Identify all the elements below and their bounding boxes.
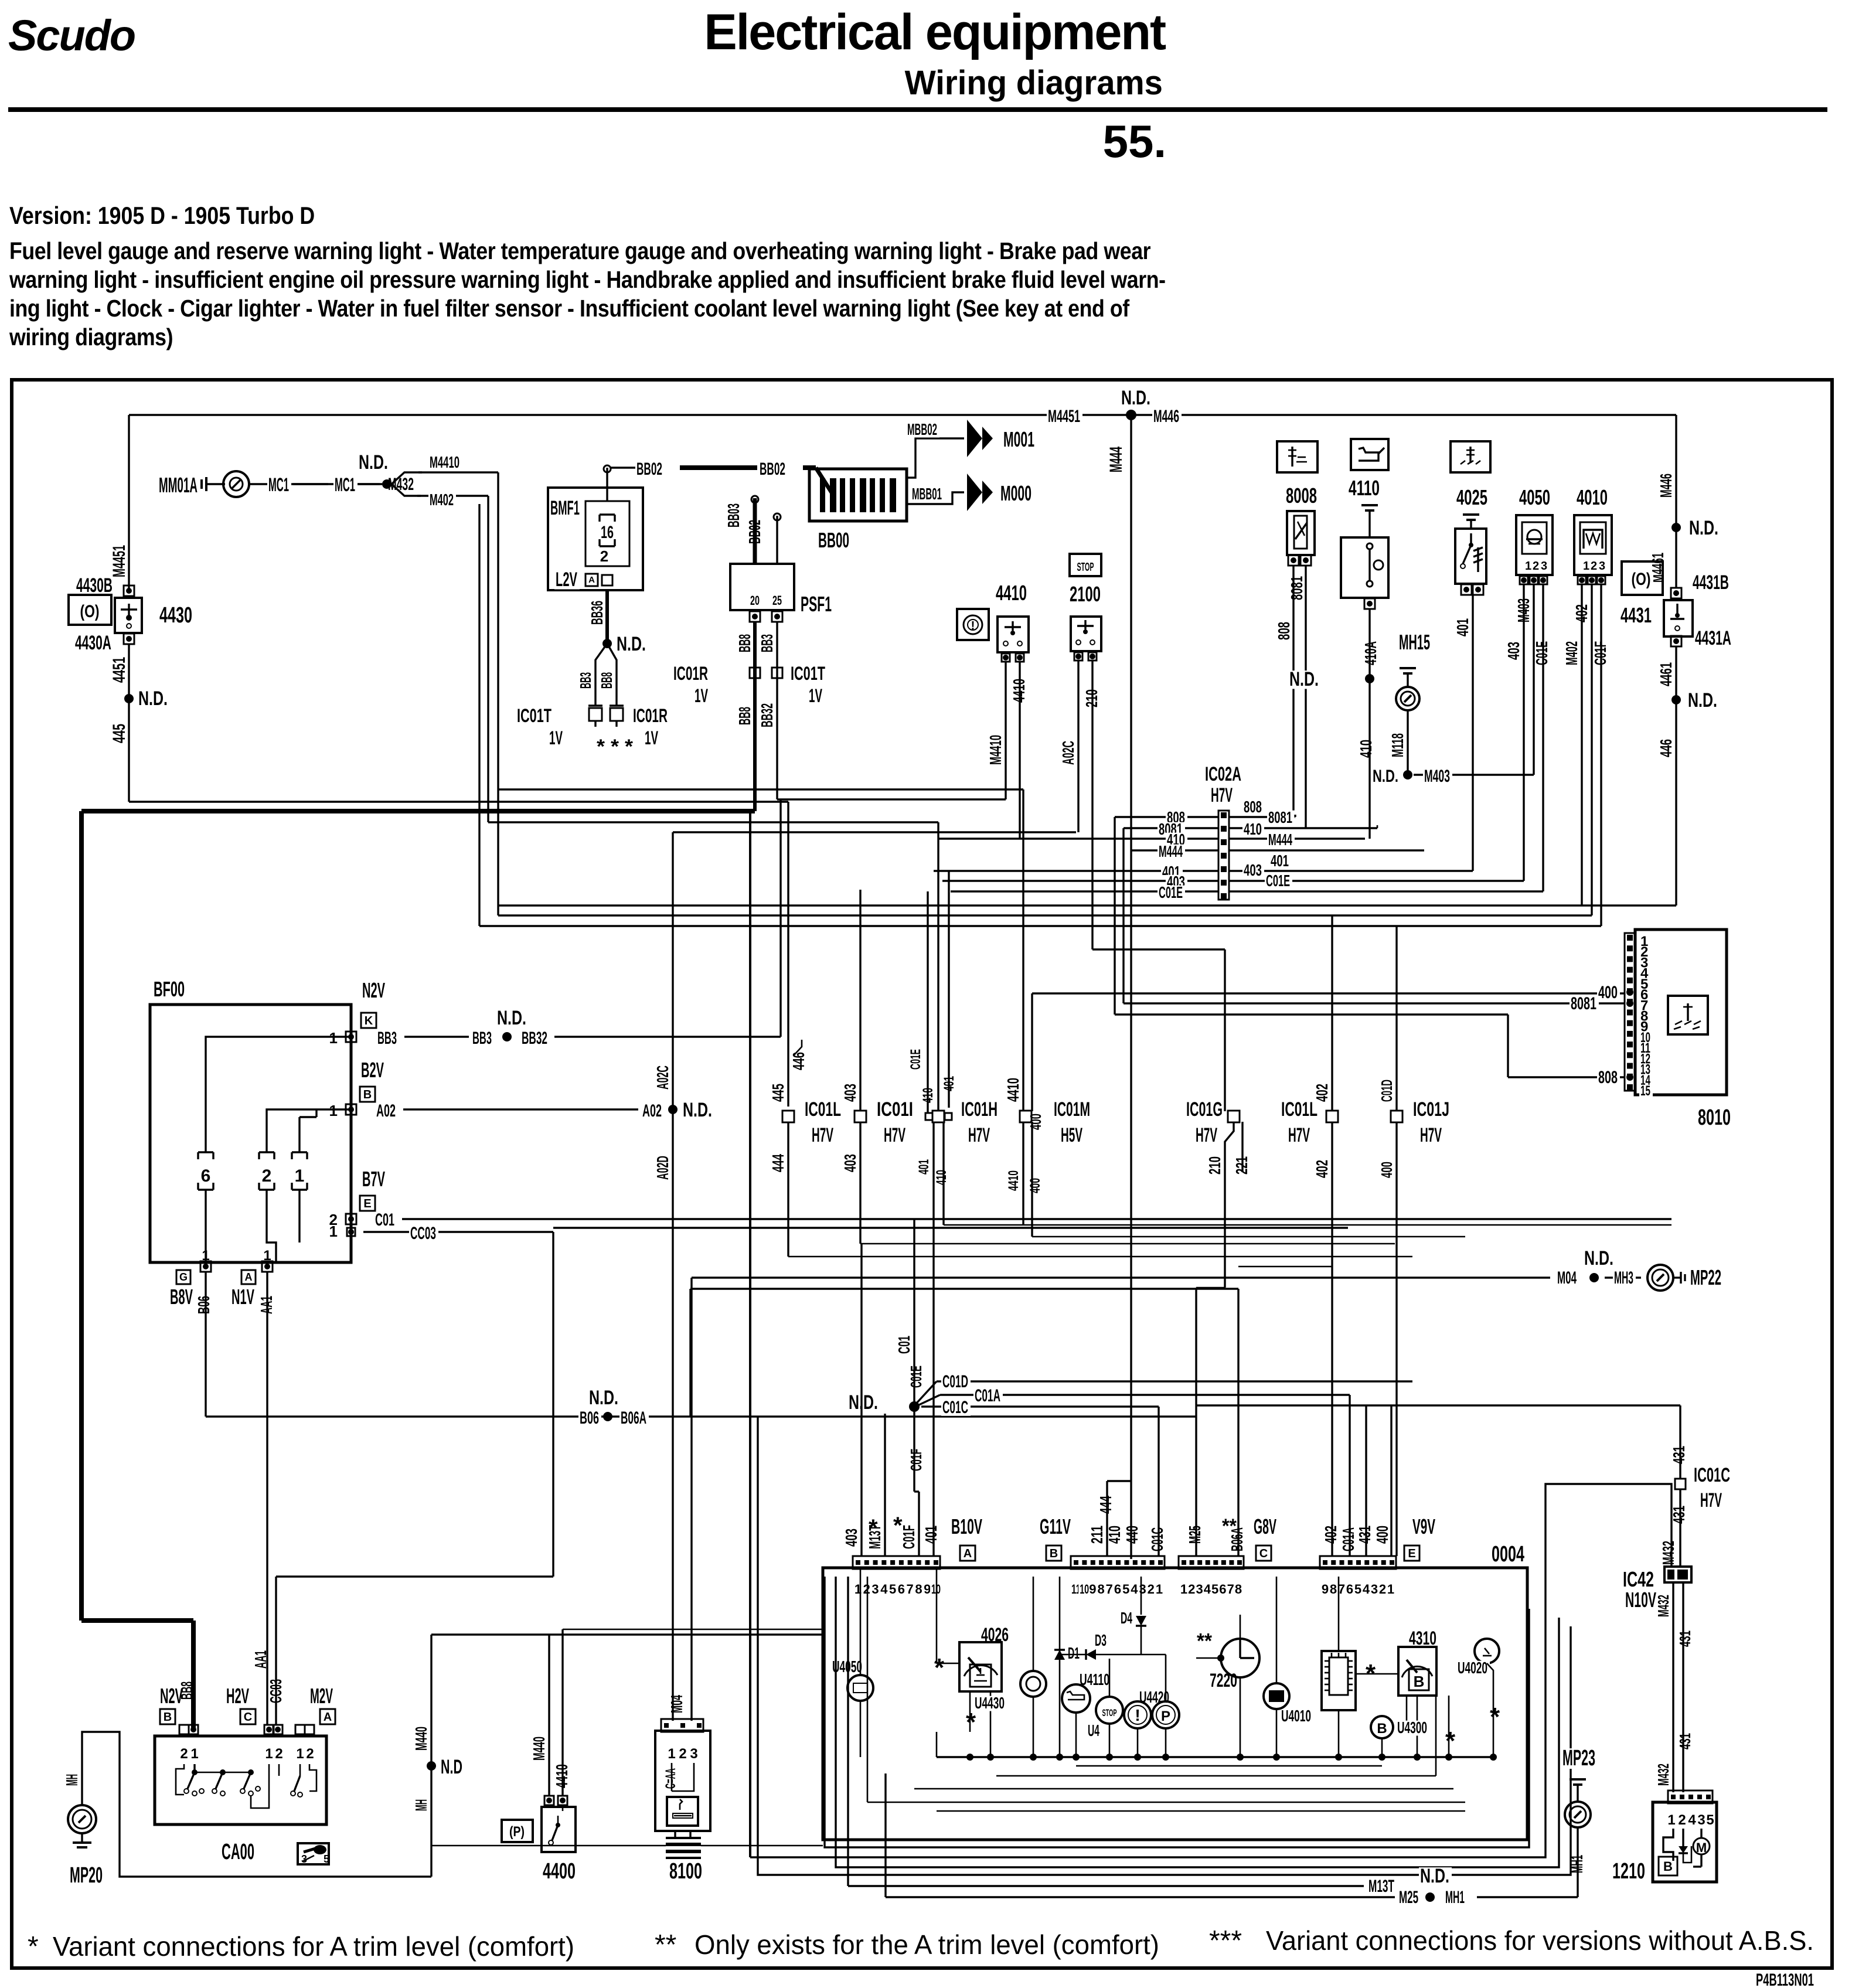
svg-text:401: 401 — [922, 1526, 940, 1544]
svg-text:C01E: C01E — [1266, 872, 1290, 890]
svg-text:4050: 4050 — [1519, 485, 1550, 509]
svg-text:*: * — [28, 1931, 39, 1962]
svg-text:IC01R: IC01R — [633, 705, 668, 726]
svg-text:4430: 4430 — [159, 603, 192, 628]
svg-text:IC01T: IC01T — [791, 663, 825, 684]
svg-text:MP20: MP20 — [70, 1863, 103, 1888]
svg-text:5: 5 — [1354, 1582, 1361, 1596]
svg-text:8081: 8081 — [1288, 576, 1306, 600]
svg-text:400: 400 — [1378, 1162, 1395, 1178]
svg-text:4: 4 — [1131, 1582, 1138, 1596]
svg-text:1: 1 — [1156, 1582, 1163, 1596]
svg-text:N.D.: N.D. — [497, 1007, 526, 1029]
svg-text:U4020: U4020 — [1458, 1659, 1487, 1677]
svg-text:403: 403 — [1244, 861, 1262, 879]
svg-text:1: 1 — [329, 1102, 338, 1119]
svg-text:3: 3 — [1371, 1582, 1378, 1596]
svg-text:BB8: BB8 — [736, 707, 754, 725]
svg-text:(O): (O) — [1632, 570, 1651, 589]
svg-text:D3: D3 — [1095, 1631, 1107, 1649]
svg-text:4010: 4010 — [1577, 485, 1608, 509]
svg-text:PSF1: PSF1 — [801, 592, 832, 616]
svg-text:MH: MH — [63, 1774, 81, 1786]
svg-text:BB3: BB3 — [758, 634, 776, 652]
svg-text:M402: M402 — [1562, 641, 1581, 665]
svg-text:U4: U4 — [1088, 1721, 1099, 1740]
svg-text:8008: 8008 — [1286, 484, 1317, 508]
svg-text:N.D.: N.D. — [1420, 1865, 1449, 1887]
svg-text:E: E — [1408, 1547, 1415, 1560]
svg-text:4025: 4025 — [1456, 485, 1487, 509]
svg-text:IC01J: IC01J — [1413, 1098, 1449, 1121]
svg-text:1: 1 — [668, 1746, 675, 1762]
svg-text:H5V: H5V — [1061, 1124, 1082, 1146]
svg-text:N.D.: N.D. — [617, 633, 646, 655]
svg-text:C01A: C01A — [975, 1386, 1000, 1405]
svg-text:BB32: BB32 — [522, 1029, 547, 1048]
svg-text:BB02: BB02 — [636, 459, 662, 479]
svg-text:C: C — [1259, 1547, 1268, 1560]
svg-text:1: 1 — [296, 1746, 304, 1762]
svg-text:445: 445 — [110, 724, 129, 743]
svg-text:1V: 1V — [549, 727, 563, 748]
svg-text:A: A — [245, 1271, 253, 1283]
svg-text:M04: M04 — [1557, 1268, 1577, 1288]
svg-text:401: 401 — [941, 1076, 957, 1091]
svg-text:C01D: C01D — [942, 1372, 968, 1391]
svg-text:4: 4 — [1204, 1582, 1211, 1596]
svg-text:P: P — [1161, 1708, 1170, 1724]
svg-text:V9V: V9V — [1412, 1514, 1435, 1538]
svg-text:403: 403 — [842, 1529, 860, 1547]
svg-text:B: B — [363, 1088, 372, 1101]
svg-text:Variant connections for versio: Variant connections for versions without… — [1266, 1925, 1814, 1956]
svg-text:7: 7 — [1227, 1582, 1234, 1596]
svg-text:MH1: MH1 — [1568, 1855, 1586, 1873]
svg-text:*: * — [934, 1653, 945, 1682]
svg-text:431: 431 — [1670, 1446, 1688, 1464]
svg-text:1: 1 — [265, 1746, 273, 1762]
svg-text:MM01A: MM01A — [159, 473, 198, 497]
svg-text:CA00: CA00 — [222, 1840, 254, 1864]
svg-text:B06A: B06A — [621, 1408, 646, 1428]
svg-text:N.D.: N.D. — [683, 1099, 712, 1121]
svg-text:A02: A02 — [376, 1101, 396, 1121]
svg-text:M2V: M2V — [310, 1684, 333, 1708]
svg-text:4410: 4410 — [553, 1764, 571, 1788]
svg-text:2: 2 — [1678, 1812, 1686, 1828]
svg-text:C01: C01 — [375, 1210, 394, 1230]
svg-text:IC01G: IC01G — [1186, 1098, 1223, 1121]
svg-text:M432: M432 — [388, 475, 414, 494]
svg-text:M402: M402 — [430, 491, 454, 509]
svg-text:M: M — [1696, 1840, 1707, 1855]
svg-text:4431B: 4431B — [1693, 571, 1729, 594]
svg-text:4430B: 4430B — [76, 574, 113, 597]
svg-text:403: 403 — [841, 1154, 859, 1172]
svg-text:N.D.: N.D. — [1688, 689, 1717, 712]
svg-text:8010: 8010 — [1698, 1105, 1731, 1130]
svg-text:M446: M446 — [1153, 407, 1179, 426]
svg-text:U4010: U4010 — [1281, 1707, 1311, 1725]
svg-text:P4B113N01: P4B113N01 — [1756, 1970, 1814, 1988]
svg-text:16: 16 — [601, 523, 614, 542]
svg-text:400: 400 — [1027, 1178, 1043, 1193]
svg-text:402: 402 — [1313, 1160, 1331, 1178]
svg-text:A: A — [964, 1547, 972, 1560]
svg-text:2: 2 — [180, 1746, 188, 1762]
svg-text:MH: MH — [412, 1799, 430, 1811]
svg-text:MC1: MC1 — [268, 474, 289, 495]
svg-text:1210: 1210 — [1612, 1859, 1645, 1884]
svg-text:M444: M444 — [1268, 830, 1292, 849]
svg-text:C01F: C01F — [900, 1525, 918, 1549]
svg-text:*: * — [966, 1708, 976, 1737]
svg-text:H2V: H2V — [226, 1684, 249, 1708]
svg-text:2: 2 — [1148, 1582, 1155, 1596]
svg-text:M04: M04 — [668, 1695, 686, 1713]
svg-text:MH3: MH3 — [1614, 1268, 1633, 1288]
svg-text:BB3: BB3 — [472, 1029, 492, 1048]
svg-text:400: 400 — [1373, 1526, 1391, 1544]
svg-text:BB36: BB36 — [588, 601, 606, 625]
svg-text:401: 401 — [1453, 618, 1472, 636]
svg-text:A: A — [324, 1711, 332, 1724]
svg-text:444: 444 — [769, 1154, 787, 1172]
svg-text:B06: B06 — [580, 1408, 599, 1428]
svg-text:BB3: BB3 — [577, 672, 594, 689]
svg-text:4110: 4110 — [1349, 476, 1380, 500]
svg-text:25: 25 — [772, 593, 782, 608]
svg-text:4410: 4410 — [1004, 1078, 1022, 1102]
svg-text:(P): (P) — [509, 1824, 525, 1840]
svg-text:4310: 4310 — [1409, 1628, 1436, 1649]
svg-text:(O): (O) — [80, 602, 100, 621]
svg-text:MP23: MP23 — [1562, 1746, 1595, 1771]
svg-text:N1V: N1V — [231, 1285, 254, 1309]
svg-text:C: C — [244, 1711, 252, 1724]
svg-text:M432: M432 — [1659, 1541, 1677, 1565]
svg-text:M4410: M4410 — [986, 735, 1005, 765]
svg-text:808: 808 — [1244, 798, 1262, 816]
svg-text:STOP: STOP — [1077, 561, 1094, 574]
svg-text:1: 1 — [202, 1248, 209, 1264]
svg-text:M432: M432 — [1654, 1764, 1672, 1786]
svg-text:M4451: M4451 — [1048, 407, 1080, 426]
svg-text:3: 3 — [301, 1853, 307, 1865]
svg-text:210: 210 — [1206, 1156, 1224, 1175]
svg-text:402: 402 — [1572, 604, 1591, 622]
svg-text:B8V: B8V — [170, 1285, 193, 1309]
svg-text:MP22: MP22 — [1690, 1265, 1721, 1289]
svg-text:N.D.: N.D. — [138, 687, 168, 710]
svg-text:BB32: BB32 — [758, 703, 776, 727]
svg-text:C01E: C01E — [1159, 883, 1183, 901]
svg-text:C01E: C01E — [1533, 641, 1551, 665]
svg-text:6: 6 — [201, 1166, 211, 1186]
svg-text:410: 410 — [920, 1088, 936, 1103]
svg-text:9: 9 — [1322, 1582, 1329, 1596]
svg-text:N.D: N.D — [441, 1756, 462, 1778]
svg-text:0004: 0004 — [1492, 1542, 1524, 1567]
svg-text:C01D: C01D — [1378, 1080, 1395, 1102]
svg-text:7: 7 — [907, 1582, 914, 1596]
svg-text:1V: 1V — [809, 685, 822, 706]
svg-text:**: ** — [1197, 1629, 1212, 1653]
svg-text:!: ! — [1135, 1706, 1140, 1724]
svg-text:403: 403 — [1504, 642, 1523, 660]
svg-text:M4451: M4451 — [110, 545, 129, 577]
svg-text:410: 410 — [1357, 740, 1375, 758]
svg-text:401: 401 — [1271, 852, 1289, 870]
svg-text:M001: M001 — [1003, 427, 1034, 451]
svg-text:M403: M403 — [1424, 767, 1450, 786]
svg-text:10: 10 — [1080, 1582, 1089, 1596]
svg-text:808: 808 — [1598, 1068, 1618, 1087]
svg-text:8: 8 — [915, 1582, 922, 1596]
svg-text:7: 7 — [1106, 1582, 1113, 1596]
svg-text:**: ** — [655, 1929, 676, 1960]
svg-text:2: 2 — [600, 547, 608, 565]
svg-text:B: B — [1377, 1721, 1387, 1737]
svg-text:A02C: A02C — [653, 1066, 672, 1090]
svg-text:H7V: H7V — [812, 1124, 833, 1146]
svg-text:2: 2 — [1591, 560, 1597, 573]
svg-text:H7V: H7V — [1196, 1124, 1217, 1146]
svg-text:BB03: BB03 — [724, 503, 743, 527]
svg-text:211: 211 — [1088, 1526, 1106, 1544]
svg-text:446: 446 — [1657, 739, 1675, 757]
svg-text:IC01L: IC01L — [1281, 1098, 1317, 1121]
svg-text:4410: 4410 — [1006, 1170, 1022, 1191]
svg-text:B: B — [164, 1711, 172, 1724]
svg-text:1: 1 — [329, 1223, 338, 1240]
svg-text:U4300: U4300 — [1397, 1718, 1427, 1737]
svg-text:N.D.: N.D. — [589, 1387, 618, 1409]
svg-text:2: 2 — [306, 1746, 314, 1762]
svg-text:M25: M25 — [1186, 1526, 1204, 1544]
svg-text:400: 400 — [1598, 983, 1618, 1002]
svg-text:IC01L: IC01L — [805, 1098, 841, 1121]
svg-text:1: 1 — [1180, 1582, 1187, 1596]
svg-text:9: 9 — [924, 1582, 931, 1596]
svg-text:4: 4 — [1688, 1812, 1696, 1828]
svg-text:1: 1 — [263, 1248, 271, 1264]
svg-text:6: 6 — [898, 1582, 905, 1596]
svg-text:N.D.: N.D. — [359, 451, 388, 474]
svg-text:8081: 8081 — [1571, 994, 1596, 1013]
svg-text:5: 5 — [1706, 1812, 1714, 1828]
svg-text:403: 403 — [841, 1084, 859, 1102]
svg-text:C=AA: C=AA — [663, 1768, 679, 1789]
svg-text:E: E — [363, 1197, 371, 1210]
svg-text:H7V: H7V — [1211, 784, 1233, 806]
svg-text:M118: M118 — [1388, 733, 1407, 757]
svg-text:BB3: BB3 — [377, 1029, 397, 1048]
svg-text:8: 8 — [1330, 1582, 1337, 1596]
svg-text:431: 431 — [1356, 1526, 1374, 1544]
svg-text:M4410: M4410 — [430, 453, 459, 471]
svg-text:M446: M446 — [1657, 474, 1675, 498]
svg-text:M000: M000 — [1000, 481, 1031, 505]
svg-text:1: 1 — [295, 1166, 305, 1186]
svg-text:*: * — [1445, 1727, 1456, 1755]
svg-text:A02: A02 — [642, 1101, 662, 1121]
svg-text:!: ! — [971, 619, 975, 632]
svg-text:M444: M444 — [1107, 447, 1126, 472]
svg-text:AA1: AA1 — [251, 1650, 270, 1669]
svg-text:8: 8 — [1235, 1582, 1242, 1596]
svg-text:N10V: N10V — [1625, 1588, 1656, 1612]
svg-text:MBB02: MBB02 — [907, 420, 937, 438]
svg-text:B7V: B7V — [362, 1167, 385, 1191]
svg-text:K: K — [365, 1015, 373, 1027]
svg-text:431: 431 — [1676, 1733, 1694, 1749]
svg-text:M13T: M13T — [866, 1525, 884, 1549]
svg-text:IC02A: IC02A — [1205, 763, 1241, 785]
svg-text:B: B — [1050, 1547, 1058, 1560]
svg-text:6: 6 — [1346, 1582, 1353, 1596]
svg-text:M403: M403 — [1514, 598, 1533, 622]
svg-text:2: 2 — [275, 1746, 282, 1762]
svg-text:3: 3 — [1541, 560, 1547, 573]
svg-text:STOP: STOP — [1102, 1707, 1117, 1718]
svg-text:1: 1 — [1387, 1582, 1394, 1596]
svg-text:6: 6 — [1114, 1582, 1121, 1596]
svg-text:446: 446 — [789, 1052, 808, 1070]
svg-text:808: 808 — [1275, 622, 1293, 640]
svg-text:5: 5 — [1211, 1582, 1218, 1596]
svg-text:B: B — [1663, 1859, 1673, 1874]
svg-text:C01E: C01E — [907, 1366, 925, 1388]
svg-text:4: 4 — [880, 1582, 888, 1596]
svg-text:IC01H: IC01H — [961, 1098, 998, 1121]
svg-text:1: 1 — [1667, 1812, 1675, 1828]
svg-text:IC01C: IC01C — [1694, 1464, 1730, 1486]
svg-text:C01F: C01F — [907, 1449, 925, 1471]
svg-text:M440: M440 — [530, 1737, 548, 1761]
svg-text:***: *** — [1209, 1925, 1242, 1956]
svg-text:N.D.: N.D. — [849, 1391, 878, 1414]
svg-text:15: 15 — [1640, 1083, 1650, 1099]
svg-text:MH15: MH15 — [1399, 630, 1430, 654]
svg-text:BMF1: BMF1 — [550, 497, 580, 519]
svg-text:N.D.: N.D. — [1689, 517, 1718, 539]
svg-text:4430A: 4430A — [75, 632, 111, 654]
svg-text:C01F: C01F — [1591, 641, 1609, 665]
svg-text:M444: M444 — [1159, 842, 1183, 860]
svg-text:1V: 1V — [694, 685, 708, 706]
svg-text:M432: M432 — [1654, 1595, 1672, 1617]
svg-text:M13T: M13T — [1368, 1877, 1394, 1896]
svg-text:1: 1 — [190, 1746, 198, 1762]
svg-text:*: * — [1490, 1703, 1500, 1731]
svg-text:BB8: BB8 — [178, 1681, 196, 1700]
svg-text:2: 2 — [1379, 1582, 1386, 1596]
svg-text:8: 8 — [1097, 1582, 1104, 1596]
svg-text:431: 431 — [1676, 1630, 1694, 1647]
svg-text:C01: C01 — [895, 1336, 913, 1354]
svg-text:CC03: CC03 — [267, 1679, 285, 1703]
svg-text:M25: M25 — [1399, 1888, 1418, 1907]
svg-text:BB02: BB02 — [760, 459, 785, 479]
svg-text:2: 2 — [1533, 560, 1539, 573]
svg-text:444: 444 — [1097, 1496, 1115, 1514]
svg-text:210: 210 — [1082, 689, 1101, 707]
svg-text:BB02: BB02 — [745, 520, 764, 544]
svg-text:Variant connections for A trim: Variant connections for A trim level (co… — [53, 1931, 574, 1962]
svg-text:410A: 410A — [1361, 641, 1380, 665]
svg-text:402: 402 — [1322, 1526, 1340, 1544]
svg-text:9: 9 — [1089, 1582, 1096, 1596]
svg-text:BB8: BB8 — [598, 672, 615, 689]
svg-text:410: 410 — [1244, 820, 1262, 838]
svg-text:BB8: BB8 — [736, 634, 754, 652]
svg-text:N.D.: N.D. — [1373, 767, 1398, 786]
svg-text:6: 6 — [1219, 1582, 1226, 1596]
svg-text:G8V: G8V — [1254, 1514, 1276, 1538]
svg-text:MH1: MH1 — [1445, 1888, 1465, 1907]
svg-text:IC01M: IC01M — [1054, 1098, 1090, 1121]
svg-text:1: 1 — [1525, 560, 1531, 573]
svg-text:4400: 4400 — [543, 1859, 576, 1884]
svg-text:5: 5 — [324, 1853, 329, 1865]
svg-text:1V: 1V — [645, 727, 658, 748]
svg-text:4431A: 4431A — [1695, 627, 1731, 649]
svg-text:3: 3 — [871, 1582, 879, 1596]
svg-text:7220: 7220 — [1210, 1670, 1237, 1691]
svg-text:B: B — [1414, 1673, 1425, 1690]
svg-text:IC01I: IC01I — [877, 1098, 913, 1121]
svg-text:C01C: C01C — [1148, 1527, 1166, 1551]
svg-text:3: 3 — [1599, 560, 1605, 573]
svg-text:H7V: H7V — [1700, 1489, 1722, 1512]
svg-text:2: 2 — [1188, 1582, 1195, 1596]
svg-text:D4: D4 — [1121, 1609, 1132, 1627]
svg-text:2: 2 — [262, 1166, 272, 1186]
svg-text:2100: 2100 — [1070, 582, 1101, 606]
svg-text:C01A: C01A — [1339, 1527, 1357, 1551]
svg-text:IC01T: IC01T — [517, 705, 551, 726]
svg-text:B10V: B10V — [951, 1514, 982, 1538]
svg-text:C01E: C01E — [908, 1049, 924, 1070]
svg-text:A02D: A02D — [653, 1156, 672, 1180]
svg-text:440: 440 — [1123, 1526, 1141, 1544]
svg-text:N.D.: N.D. — [1584, 1247, 1613, 1269]
svg-text:N.D.: N.D. — [1121, 387, 1150, 409]
svg-text:1: 1 — [1583, 560, 1589, 573]
svg-text:C01C: C01C — [942, 1398, 968, 1417]
svg-text:H7V: H7V — [1420, 1124, 1442, 1146]
svg-text:3: 3 — [1196, 1582, 1203, 1596]
svg-text:5: 5 — [889, 1582, 896, 1596]
svg-text:3: 3 — [1697, 1812, 1705, 1828]
svg-text:Only exists for the A trim lev: Only exists for the A trim level (comfor… — [694, 1929, 1159, 1960]
svg-text:N.D.: N.D. — [1289, 668, 1319, 690]
svg-text:5: 5 — [1122, 1582, 1129, 1596]
svg-text:B06A: B06A — [1228, 1527, 1246, 1551]
svg-text:4451: 4451 — [110, 657, 129, 683]
svg-text:*: * — [1366, 1659, 1376, 1688]
svg-text:B06: B06 — [195, 1296, 213, 1314]
svg-text:L2V: L2V — [556, 569, 577, 591]
svg-text:BB00: BB00 — [818, 528, 849, 552]
svg-text:4461: 4461 — [1657, 662, 1675, 686]
svg-text:4410: 4410 — [1010, 679, 1028, 703]
svg-text:A02C: A02C — [1059, 741, 1077, 765]
svg-text:20: 20 — [750, 593, 760, 608]
svg-text:3: 3 — [690, 1746, 697, 1762]
